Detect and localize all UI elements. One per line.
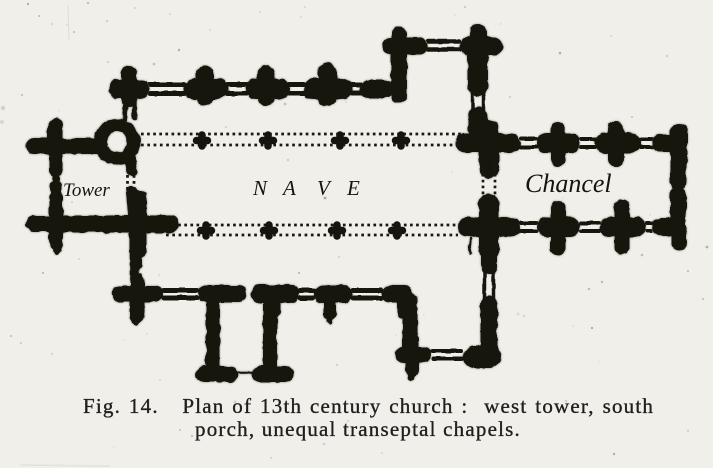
svg-text:V: V xyxy=(317,176,332,200)
svg-text:A: A xyxy=(281,176,296,200)
svg-text:N: N xyxy=(252,176,268,200)
svg-text:Chancel: Chancel xyxy=(525,169,612,198)
svg-text:Tower: Tower xyxy=(63,180,110,201)
svg-text:E: E xyxy=(346,176,360,200)
